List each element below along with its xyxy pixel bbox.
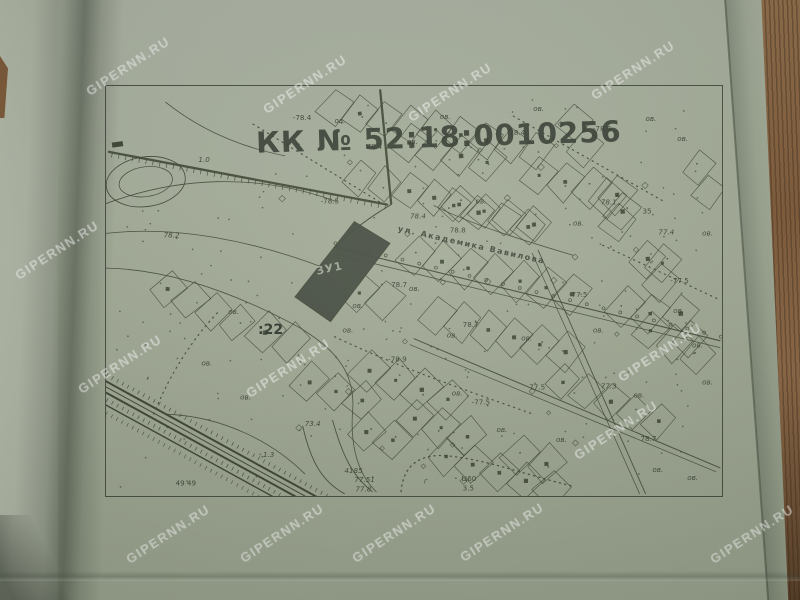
map-label: 78.7 <box>641 434 657 443</box>
map-label: ов. <box>677 134 688 143</box>
photo-of-cadastral-map-document: 1.078.2-78.4ов.78.4ов.ов.ов.78.4-78.6ов.… <box>0 0 800 600</box>
map-label: 4185 <box>344 466 363 475</box>
map-label: 1.0 <box>198 155 210 164</box>
map-label: ов. <box>342 326 353 335</box>
map-label: ов. <box>521 334 532 343</box>
map-label: 77.51 <box>354 475 374 484</box>
watermark: GIPERNN.RU <box>457 499 546 564</box>
map-label: ов. <box>556 435 567 444</box>
map-point-labels: 1.078.2-78.4ов.78.4ов.ов.ов.78.4-78.6ов.… <box>164 104 713 494</box>
map-label: ов. <box>496 425 507 434</box>
map-label: ов. <box>645 114 656 123</box>
map-label: ов. <box>702 377 713 386</box>
map-label: ов. <box>702 228 713 237</box>
paper-crease <box>0 571 800 581</box>
map-label: ов. <box>228 307 239 316</box>
map-label: 77.5 <box>529 382 545 391</box>
map-label: -78.9 <box>388 355 407 364</box>
map-label: ов. <box>634 390 645 399</box>
map-label: 78.2 <box>164 230 180 239</box>
map-label: ов. <box>452 388 463 397</box>
stadium-oval <box>106 141 189 212</box>
map-label: ов. <box>533 104 544 113</box>
map-label: -78.4 <box>293 113 312 122</box>
watermark: GIPERNN.RU <box>237 500 326 565</box>
map-label: 35 <box>643 207 652 216</box>
map-label: 78.7 <box>391 280 407 289</box>
map-label: ов. <box>652 465 663 474</box>
watermark: GIPERNN.RU <box>123 501 212 566</box>
cadastral-map: 1.078.2-78.4ов.78.4ов.ов.ов.78.4-78.6ов.… <box>105 85 723 497</box>
map-label: -77.5 <box>670 276 688 285</box>
map-label: 78.4 <box>410 211 426 220</box>
bottom-left-shadow <box>0 515 80 600</box>
map-label: ов. <box>476 197 487 206</box>
map-label: ов. <box>687 473 698 482</box>
map-label: ов. <box>409 284 420 293</box>
map-label: ов. <box>352 301 363 310</box>
watermark: GIPERNN.RU <box>349 500 438 565</box>
map-label: 73.4 <box>305 419 321 428</box>
map-label: 78.7 <box>463 320 479 329</box>
map-label: ов. <box>447 331 458 340</box>
map-label: 49 49 <box>176 479 197 488</box>
map-label: ов. <box>593 326 604 335</box>
map-label: -77.5 <box>472 397 490 406</box>
map-label: -77.5 <box>569 290 587 299</box>
map-label: г <box>424 477 428 486</box>
map-label: Ц60 <box>462 474 477 483</box>
map-label: -78.5 <box>321 197 339 206</box>
railway <box>106 371 343 496</box>
map-label: ов. <box>573 218 584 227</box>
map-label: ов. <box>201 359 212 368</box>
map-label: 77.8 <box>355 485 371 494</box>
map-label: 3.5 <box>463 484 474 493</box>
map-label: 77.4 <box>658 227 674 236</box>
map-label: 77.3 <box>601 381 617 390</box>
map-label: ов. <box>240 392 251 401</box>
map-label: ов. <box>673 306 684 315</box>
map-label: 1.3 <box>263 450 275 459</box>
map-label: ов. <box>692 341 703 350</box>
map-label: 78.1 <box>601 198 617 207</box>
map-label: 78.8 <box>450 225 466 234</box>
parcel-number-label: :22 <box>258 322 283 338</box>
